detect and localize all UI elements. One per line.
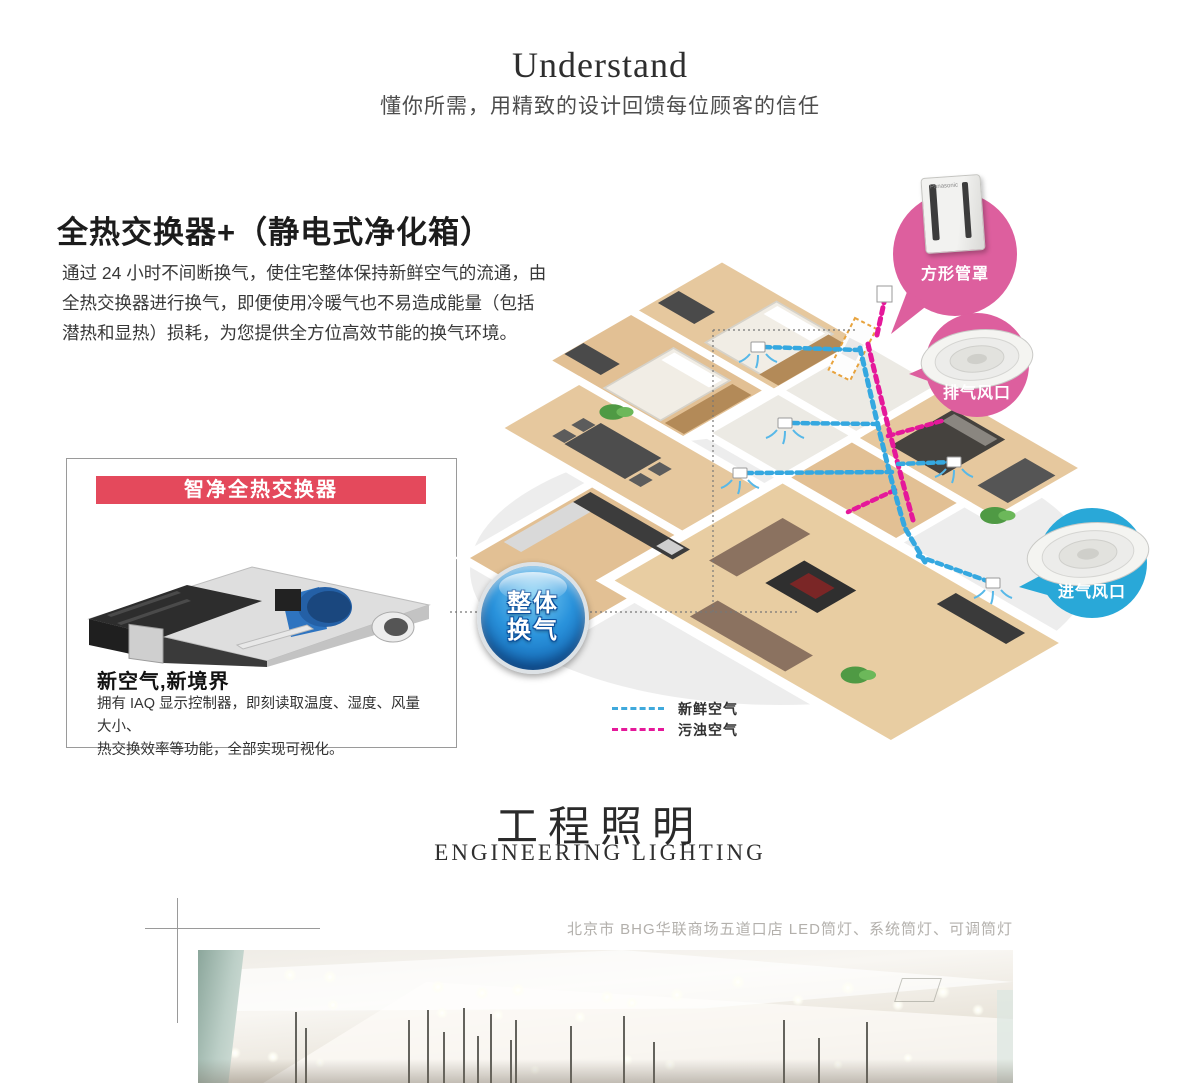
photo-bottom-shade bbox=[198, 1059, 1013, 1083]
product-banner: 智净全热交换器 bbox=[96, 476, 426, 504]
product-title: 新空气,新境界 bbox=[97, 665, 230, 694]
floorplan-illustration bbox=[440, 240, 1180, 760]
badge-line: 整体 bbox=[507, 591, 559, 618]
heat-exchanger-image bbox=[77, 557, 445, 669]
product-card: 智净全热交换器 新空气,新境界 拥有 IAQ 显示控制器，即刻读取温度、湿度、风… bbox=[66, 458, 457, 748]
page: Understand 懂你所需，用精致的设计回馈每位顾客的信任 全热交换器+（静… bbox=[0, 0, 1200, 1083]
ceiling-vent bbox=[894, 978, 942, 1002]
legend-label: 污浊空气 bbox=[678, 720, 738, 740]
crop-mark-vertical bbox=[177, 898, 178, 1023]
description-line: 热交换效率等功能，全部实现可视化。 bbox=[97, 739, 432, 762]
callout-intake-vent: 进气风口 bbox=[1037, 508, 1147, 618]
fresh-air-line-swatch bbox=[612, 707, 664, 710]
airflow-legend: 新鲜空气 污浊空气 bbox=[612, 698, 738, 740]
callout-label: 排气风口 bbox=[925, 379, 1029, 403]
callout-label: 进气风口 bbox=[1037, 578, 1147, 602]
section-heading: 全热交换器+（静电式净化箱） bbox=[57, 207, 492, 252]
page-title: Understand bbox=[0, 44, 1200, 86]
square-duct-cover-image: Panasonic bbox=[920, 174, 985, 254]
photo-caption: 北京市 BHG华联商场五道口店 LED筒灯、系统筒灯、可调筒灯 bbox=[567, 918, 1013, 939]
description-line: 拥有 IAQ 显示控制器，即刻读取温度、湿度、风量大小、 bbox=[97, 693, 432, 739]
page-subtitle: 懂你所需，用精致的设计回馈每位顾客的信任 bbox=[0, 90, 1200, 120]
callout-square-duct-cover: Panasonic 方形管罩 bbox=[893, 192, 1017, 316]
whole-house-ventilation-badge: 整体 换气 bbox=[477, 562, 589, 674]
callout-label: 方形管罩 bbox=[893, 260, 1017, 284]
lighting-subtitle: ENGINEERING LIGHTING bbox=[0, 840, 1200, 866]
legend-label: 新鲜空气 bbox=[678, 699, 738, 719]
badge-line: 换气 bbox=[507, 618, 559, 645]
legend-row-fresh-air: 新鲜空气 bbox=[612, 698, 738, 719]
product-description: 拥有 IAQ 显示控制器，即刻读取温度、湿度、风量大小、 热交换效率等功能，全部… bbox=[97, 693, 432, 763]
callout-exhaust-vent: 排气风口 bbox=[925, 313, 1029, 417]
ceiling-photo bbox=[198, 950, 1013, 1083]
legend-row-dirty-air: 污浊空气 bbox=[612, 719, 738, 740]
dirty-air-line-swatch bbox=[612, 728, 664, 731]
crop-mark-horizontal bbox=[145, 928, 320, 929]
